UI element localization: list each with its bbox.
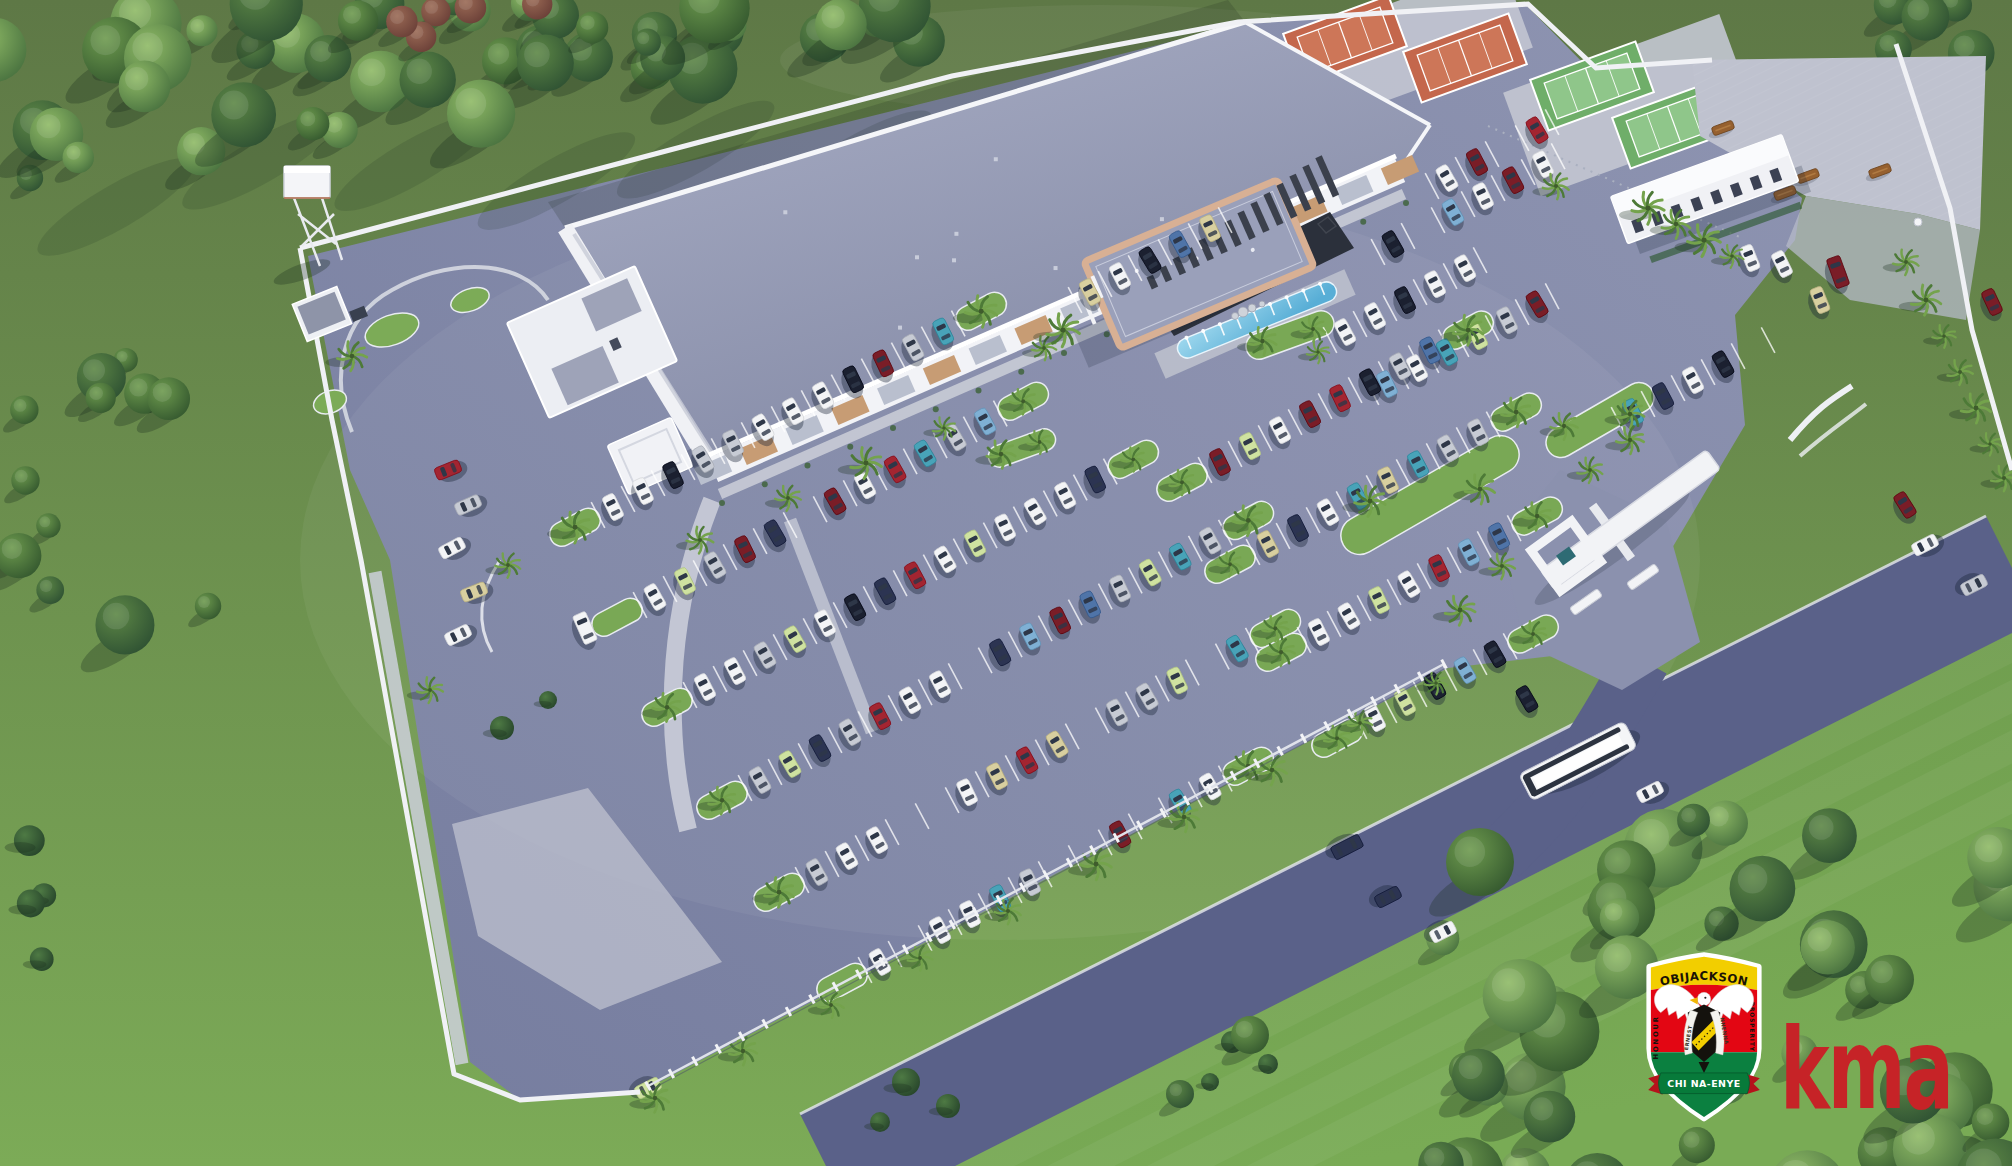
aerial-rendering: OBIJACKSON HONOUR PROSPERITY ERNEST NNEN…	[0, 0, 2012, 1166]
statue	[1914, 218, 1922, 226]
site-plan-scene	[0, 0, 2012, 1166]
